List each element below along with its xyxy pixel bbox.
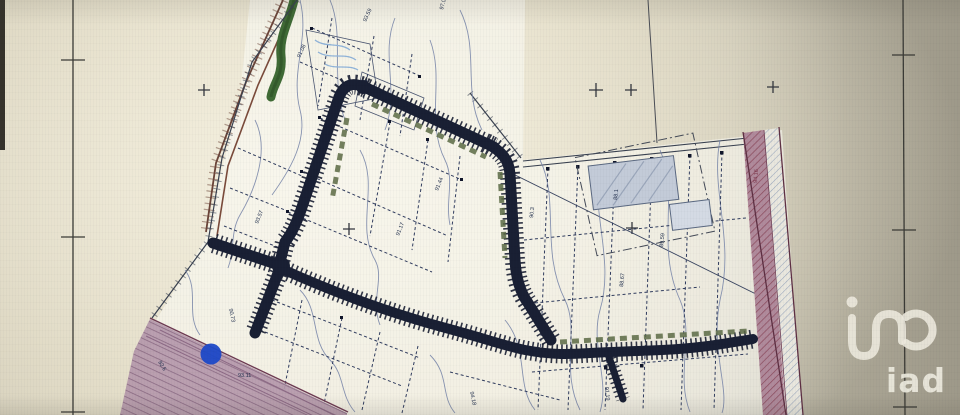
plan-drawing: 93.59 97.06 91.08 93.57 91.44 91.17 90.3…: [0, 0, 960, 415]
iad-logo-icon: [847, 297, 933, 357]
photo-edge-shadow: [0, 0, 5, 150]
blue-location-dot: [201, 344, 222, 365]
elevation-label: 90.3: [529, 207, 536, 218]
elevation-label: 94.16: [753, 169, 760, 183]
elevation-label: 93.11: [238, 373, 251, 379]
elevation-label: 88.1: [613, 189, 620, 200]
iad-logo: iad: [847, 297, 947, 401]
site-plan-photo: 93.59 97.06 91.08 93.57 91.44 91.17 90.3…: [0, 0, 960, 415]
iad-logo-text: iad: [886, 361, 946, 400]
